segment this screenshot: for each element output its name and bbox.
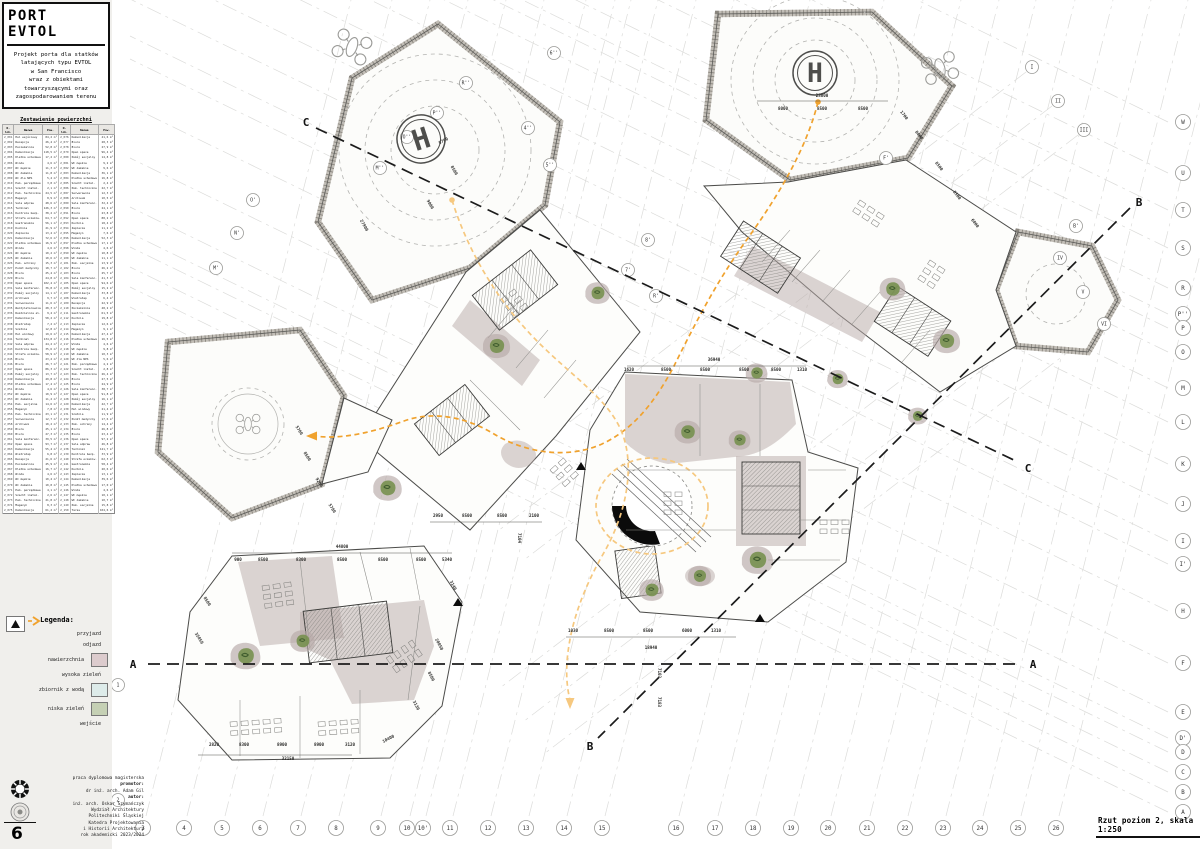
table-cell: 2_044 (3, 352, 14, 357)
svg-text:7103: 7103 (657, 668, 662, 679)
axis-bubble: 8' (642, 234, 655, 247)
axis-bubble: O' (247, 194, 260, 207)
svg-text:I': I' (1180, 562, 1187, 568)
table-cell: 2_115 (59, 332, 70, 337)
svg-text:M: M (1181, 386, 1185, 392)
title-block: PORT EVTOL Projekt porta dla statków lat… (2, 2, 110, 109)
axis-bubble: 13 (519, 821, 534, 836)
axis-bubble: 7' (622, 264, 635, 277)
table-cell: 19,6 m² (42, 332, 58, 337)
furniture-cluster (550, 458, 578, 487)
axis-bubble: R'' (460, 77, 473, 90)
svg-text:6: 6 (258, 826, 262, 832)
table-cell: 2_149 (59, 503, 70, 508)
svg-text:F': F' (883, 156, 889, 162)
svg-text:36940: 36940 (708, 357, 721, 362)
svg-text:7: 7 (296, 826, 300, 832)
area-table-header: Pow. (98, 125, 114, 135)
legend-item-label: nawierzchnia (6, 657, 91, 663)
tree-symbol (729, 430, 751, 449)
svg-text:1310: 1310 (711, 628, 722, 633)
area-table-header: Pow. (42, 125, 58, 135)
legend-swatch (91, 683, 108, 697)
table-cell: 35,6 m² (42, 347, 58, 352)
table-cell: 2_037 (3, 316, 14, 321)
table-cell: 2_005 (3, 155, 14, 160)
table-cell: Klatka schodowa (70, 483, 98, 488)
table-cell: 2_043 (3, 347, 14, 352)
svg-text:8500: 8500 (462, 513, 473, 518)
entrance-swatch-icon (6, 616, 25, 632)
axis-bubble: O (1176, 345, 1191, 360)
svg-text:18: 18 (750, 826, 757, 832)
axis-bubble: B (1176, 785, 1191, 800)
table-cell: 2_147 (59, 493, 70, 498)
svg-text:8500: 8500 (858, 106, 869, 111)
legend-item: wysoka zieleń (6, 672, 108, 678)
table-cell: 2_039 (3, 327, 14, 332)
axis-bubble: D' (1176, 731, 1191, 746)
svg-text:C: C (1025, 462, 1032, 475)
legend-item-label: wejście (6, 721, 108, 727)
axis-bubble: 12 (481, 821, 496, 836)
axis-bubble: 8 (329, 821, 344, 836)
svg-text:1310: 1310 (797, 367, 808, 372)
table-cell: 2_118 (59, 347, 70, 352)
svg-text:M'': M'' (376, 166, 385, 172)
svg-text:M': M' (213, 266, 219, 272)
axis-bubble: 18 (746, 821, 761, 836)
axis-bubble: I (1176, 534, 1191, 549)
project-title: PORT EVTOL (7, 7, 105, 46)
svg-text:3120: 3120 (345, 742, 356, 747)
table-cell: Pom. techniczne (14, 191, 42, 196)
page-number-rule (4, 822, 36, 823)
svg-text:32150: 32150 (282, 756, 295, 761)
svg-text:2820: 2820 (209, 742, 220, 747)
svg-text:12: 12 (485, 826, 492, 832)
svg-text:5780: 5780 (327, 503, 337, 515)
table-cell: 2_150 (59, 508, 70, 514)
tree-symbol (688, 566, 711, 586)
svg-text:8500: 8500 (337, 557, 348, 562)
svg-text:22: 22 (902, 826, 909, 832)
hex-pad-right (996, 232, 1118, 352)
site-plan-svg: 34567891010'1112131415161718192021222324… (0, 0, 1200, 849)
legend-item: niska zieleń (6, 702, 108, 716)
table-cell: 2_083 (59, 171, 70, 176)
axis-bubble: B' (1070, 220, 1083, 233)
svg-text:18940: 18940 (645, 645, 658, 650)
svg-text:1620: 1620 (624, 367, 635, 372)
svg-text:8500: 8500 (661, 367, 672, 372)
axis-bubble: I (1026, 61, 1039, 74)
svg-text:15: 15 (599, 826, 606, 832)
axis-bubble: 22 (898, 821, 913, 836)
svg-text:N': N' (234, 231, 240, 237)
svg-text:R': R' (653, 294, 659, 300)
table-cell: 61,2 m² (42, 508, 58, 514)
svg-text:J: J (1181, 502, 1185, 508)
svg-text:8500: 8500 (739, 367, 750, 372)
axis-bubble: H (1176, 604, 1191, 619)
tree-symbol (828, 370, 848, 388)
svg-text:P'': P'' (1178, 312, 1188, 318)
axis-bubble: 25 (1011, 821, 1026, 836)
legend-item: zbiornik z wodą (6, 683, 108, 697)
table-cell: Szacht instal. (14, 493, 42, 498)
gear-logo-icon (11, 780, 29, 798)
svg-text:900: 900 (234, 557, 242, 562)
table-cell: Pokój socjalny (70, 155, 98, 160)
table-cell: 58,9 m² (42, 352, 58, 357)
svg-text:F: F (1181, 661, 1185, 667)
table-cell: 2_006 (3, 161, 14, 166)
svg-text:8: 8 (334, 826, 338, 832)
table-cell: 2_087 (59, 191, 70, 196)
svg-text:T: T (1181, 208, 1185, 214)
table-cell: 21,8 m² (42, 498, 58, 503)
table-cell: Klatka schodowa (70, 176, 98, 181)
svg-text:10': 10' (418, 826, 428, 832)
project-description: Projekt porta dla statków latających typ… (6, 51, 106, 101)
axis-bubble: 14 (557, 821, 572, 836)
table-cell: 12,8 m² (42, 327, 58, 332)
table-cell: 2_084 (59, 176, 70, 181)
svg-text:25: 25 (1015, 826, 1022, 832)
table-cell: 2_075 (3, 508, 14, 514)
axis-bubble: 1 (112, 679, 125, 692)
table-cell: 24,5 m² (42, 191, 58, 196)
legend-item: wejście (6, 721, 108, 727)
legend-item-label: zbiornik z wodą (6, 687, 91, 693)
table-cell: 11,8 m² (42, 171, 58, 176)
axis-bubble: E (1176, 705, 1191, 720)
svg-text:D': D' (1180, 736, 1187, 742)
svg-text:B: B (1136, 196, 1143, 209)
table-cell: 17,2 m² (42, 155, 58, 160)
table-cell: Strefa oczekiw. (14, 352, 42, 357)
tree-symbol (933, 329, 960, 353)
svg-text:I: I (1031, 65, 1034, 71)
table-cell: 2_080 (59, 155, 70, 160)
credits-line: rok akademicki 2023/2024 (36, 833, 144, 839)
table-cell: Pom. porządkowe (14, 181, 42, 186)
axis-bubble: M' (210, 262, 223, 275)
axis-bubble: K (1176, 457, 1191, 472)
svg-text:4: 4 (182, 826, 186, 832)
svg-text:C: C (1181, 770, 1185, 776)
axis-bubble: II (1052, 95, 1065, 108)
table-cell: 104,6 m² (98, 508, 114, 514)
table-cell: 2_008 (3, 171, 14, 176)
svg-text:11: 11 (447, 826, 454, 832)
table-cell: 2_012 (3, 191, 14, 196)
svg-text:II: II (1055, 99, 1061, 105)
axis-bubble: F (1176, 656, 1191, 671)
axis-bubble: 19 (784, 821, 799, 836)
table-cell: 2_072 (3, 493, 14, 498)
seal-logo-icon (11, 803, 29, 821)
svg-text:24: 24 (977, 826, 984, 832)
table-cell: Szacht instal. (14, 186, 42, 191)
svg-text:O: O (1181, 350, 1185, 356)
svg-text:23: 23 (940, 826, 947, 832)
table-cell: 2_010 (3, 181, 14, 186)
axis-bubble: U (1176, 166, 1191, 181)
table-cell: Kontrola bezp. (14, 347, 42, 352)
svg-text:2100: 2100 (529, 513, 540, 518)
table-cell: 2_120 (59, 357, 70, 362)
svg-text:8': 8' (645, 238, 651, 244)
table-cell: 2_112 (59, 316, 70, 321)
axis-bubble: 17 (708, 821, 723, 836)
table-cell: 2_071 (3, 488, 14, 493)
svg-text:1: 1 (117, 683, 120, 689)
svg-text:14: 14 (561, 826, 568, 832)
table-cell: Taras (70, 508, 98, 514)
svg-text:D: D (1181, 750, 1185, 756)
svg-text:H: H (807, 58, 823, 89)
axis-bubble: R (1176, 281, 1191, 296)
tree-symbol (585, 282, 609, 304)
axis-bubble: N' (231, 227, 244, 240)
svg-text:16: 16 (673, 826, 680, 832)
table-cell: 2_045 (3, 357, 14, 362)
svg-text:7104: 7104 (517, 533, 522, 544)
axis-bubble: I' (1176, 557, 1191, 572)
svg-text:IV: IV (1057, 256, 1063, 262)
svg-text:H: H (1181, 609, 1185, 615)
table-cell: 2_009 (3, 176, 14, 181)
svg-text:8300: 8300 (296, 557, 307, 562)
svg-text:8300: 8300 (239, 742, 250, 747)
svg-text:6'': 6'' (550, 51, 559, 57)
svg-text:8500: 8500 (378, 557, 389, 562)
axis-bubble: 4 (177, 821, 192, 836)
svg-text:8500: 8500 (258, 557, 269, 562)
svg-text:10: 10 (404, 826, 411, 832)
table-cell: Komunikacja (14, 508, 42, 514)
tree-symbol (639, 579, 663, 601)
axis-bubble: 26 (1049, 821, 1064, 836)
svg-text:A: A (1030, 658, 1037, 671)
table-cell: 58,2 m² (42, 316, 58, 321)
table-cell: 2_074 (3, 503, 14, 508)
svg-text:13: 13 (523, 826, 530, 832)
axis-bubble: F' (880, 152, 893, 165)
area-table-header: N. lok. (59, 125, 70, 135)
svg-text:20: 20 (825, 826, 832, 832)
area-table-header: Nazwa (70, 125, 98, 135)
svg-text:8900: 8900 (277, 742, 288, 747)
axis-bubble: 5'' (544, 159, 557, 172)
axis-bubble: S (1176, 241, 1191, 256)
svg-text:C: C (303, 116, 310, 129)
svg-text:7183: 7183 (657, 697, 662, 708)
svg-text:7': 7' (625, 268, 631, 274)
svg-text:B: B (587, 740, 594, 753)
svg-text:E: E (1181, 710, 1185, 716)
tree-symbol (231, 643, 261, 670)
table-cell: 2_088 (59, 196, 70, 201)
table-cell: 2_081 (59, 161, 70, 166)
table-cell: 2_085 (59, 181, 70, 186)
svg-text:R: R (1181, 286, 1185, 292)
axis-bubble: 6 (253, 821, 268, 836)
table-cell: Pom. porządkowe (14, 488, 42, 493)
axis-bubble: M (1176, 381, 1191, 396)
table-cell: Szacht instal. (70, 181, 98, 186)
axis-bubble: V (1077, 286, 1090, 299)
legend-item: odjazd (6, 642, 108, 648)
axis-bubble: P'' (1176, 307, 1191, 322)
table-cell: 2_148 (59, 498, 70, 503)
svg-text:9: 9 (376, 826, 380, 832)
tree-symbol (742, 546, 773, 574)
table-cell: 2_145 (59, 483, 70, 488)
svg-text:V: V (1082, 290, 1085, 296)
axis-bubble: III (1078, 124, 1091, 137)
svg-text:8500: 8500 (700, 367, 711, 372)
svg-text:5340: 5340 (442, 557, 453, 562)
tree-symbol (290, 630, 314, 652)
table-cell: 134,8 m² (42, 337, 58, 342)
table-cell: 2_070 (3, 483, 14, 488)
tree-symbol (675, 421, 701, 444)
axis-bubble: 21 (860, 821, 875, 836)
area-table-header: N. lok. (3, 125, 14, 135)
axis-bubble: P (1176, 321, 1191, 336)
axis-bubble: 11 (443, 821, 458, 836)
table-cell: 2_073 (3, 498, 14, 503)
table-cell: 2_117 (59, 342, 70, 347)
table-cell: 2_007 (3, 166, 14, 171)
table-cell: 11,3 m² (42, 166, 58, 171)
table-cell: 2_041 (3, 337, 14, 342)
legend-item-label: niska zieleń (6, 706, 91, 712)
table-cell: 2_082 (59, 166, 70, 171)
svg-text:5'': 5'' (546, 163, 555, 169)
svg-text:B': B' (1073, 224, 1079, 230)
axis-bubble: 23 (936, 821, 951, 836)
university-logos (7, 779, 33, 825)
table-cell: Pom. techniczne (70, 186, 98, 191)
table-cell: 2_116 (59, 337, 70, 342)
axis-bubble: M'' (374, 162, 387, 175)
axis-bubble: 10 (400, 821, 415, 836)
table-cell: 10,8 m² (42, 483, 58, 488)
svg-text:26: 26 (1053, 826, 1060, 832)
table-cell: 2_114 (59, 327, 70, 332)
tree-symbol (880, 278, 906, 301)
table-row: 2_075Komunikacja61,2 m²2_150Taras104,6 m… (3, 508, 115, 514)
table-cell: 2_013 (3, 196, 14, 201)
svg-text:6000: 6000 (682, 628, 693, 633)
svg-text:8500: 8500 (497, 513, 508, 518)
axis-bubble: 10' (416, 821, 431, 836)
svg-text:8500: 8500 (643, 628, 654, 633)
svg-text:W: W (1181, 120, 1185, 126)
svg-text:8500: 8500 (604, 628, 615, 633)
svg-text:R'': R'' (462, 81, 471, 87)
axis-bubble: L (1176, 415, 1191, 430)
table-cell: 2_113 (59, 322, 70, 327)
svg-text:VI: VI (1101, 322, 1107, 328)
axis-bubble: 20 (821, 821, 836, 836)
table-cell: 2_146 (59, 488, 70, 493)
axis-bubble: 7 (291, 821, 306, 836)
legend-item-label: odjazd (6, 642, 108, 648)
legend-swatch (91, 653, 108, 667)
svg-text:B: B (1181, 790, 1185, 796)
legend-item-label: wysoka zieleń (6, 672, 108, 678)
svg-text:8500: 8500 (934, 161, 944, 172)
table-cell: 2_069 (3, 477, 14, 482)
svg-text:44800: 44800 (336, 544, 349, 549)
area-schedule: Zestawienie powierzchni N. lok.NazwaPow.… (2, 117, 110, 513)
tree-symbol (908, 408, 927, 425)
svg-text:5: 5 (220, 826, 224, 832)
axis-bubble: 6'' (548, 47, 561, 60)
table-cell: Pom. techniczne (14, 498, 42, 503)
table-cell: 2_040 (3, 332, 14, 337)
svg-text:III: III (1080, 128, 1089, 134)
axis-bubble: 5 (215, 821, 230, 836)
table-cell: 2_011 (3, 186, 14, 191)
svg-text:K: K (1181, 462, 1185, 468)
svg-text:23800: 23800 (816, 93, 829, 98)
axis-bubble: 4'' (522, 122, 535, 135)
table-cell: 2_144 (59, 477, 70, 482)
svg-text:I: I (1181, 539, 1185, 545)
area-schedule-title: Zestawienie powierzchni (2, 117, 110, 123)
tree-symbol (483, 334, 510, 358)
svg-text:19: 19 (788, 826, 795, 832)
svg-text:U: U (1181, 171, 1185, 177)
evtol-aircraft-icon (331, 28, 374, 67)
table-cell: Klatka schodowa (70, 337, 98, 342)
axis-bubble: C (1176, 765, 1191, 780)
table-cell: Klatka schodowa (14, 155, 42, 160)
tree-symbol (746, 363, 768, 382)
legend-swatch (91, 702, 108, 716)
svg-text:A: A (130, 658, 137, 671)
table-cell: 23,2 m² (42, 357, 58, 362)
axis-bubble: J (1176, 497, 1191, 512)
axis-bubble: IV (1054, 252, 1067, 265)
drawing-title: Rzut poziom 2, skala 1:250 (1096, 816, 1200, 838)
axis-bubble: 16 (669, 821, 684, 836)
axis-bubble: T (1176, 203, 1191, 218)
table-cell: 2_042 (3, 342, 14, 347)
area-table-header: Nazwa (14, 125, 42, 135)
legend: Legenda: przyjazd odjazd nawierzchniawys… (6, 616, 108, 732)
table-cell: 44,2 m² (42, 342, 58, 347)
svg-text:O': O' (250, 198, 256, 204)
tree-symbol (373, 475, 401, 500)
table-cell: 2_086 (59, 186, 70, 191)
svg-text:21: 21 (864, 826, 871, 832)
svg-text:8900: 8900 (314, 742, 325, 747)
axis-bubble: 24 (973, 821, 988, 836)
svg-text:P'': P'' (433, 111, 442, 117)
svg-text:8000: 8000 (778, 106, 789, 111)
area-table: N. lok.NazwaPow.N. lok.NazwaPow. 2_001Ho… (2, 124, 115, 513)
table-cell: 2_038 (3, 322, 14, 327)
legend-item: nawierzchnia (6, 653, 108, 667)
svg-text:8500: 8500 (817, 106, 828, 111)
